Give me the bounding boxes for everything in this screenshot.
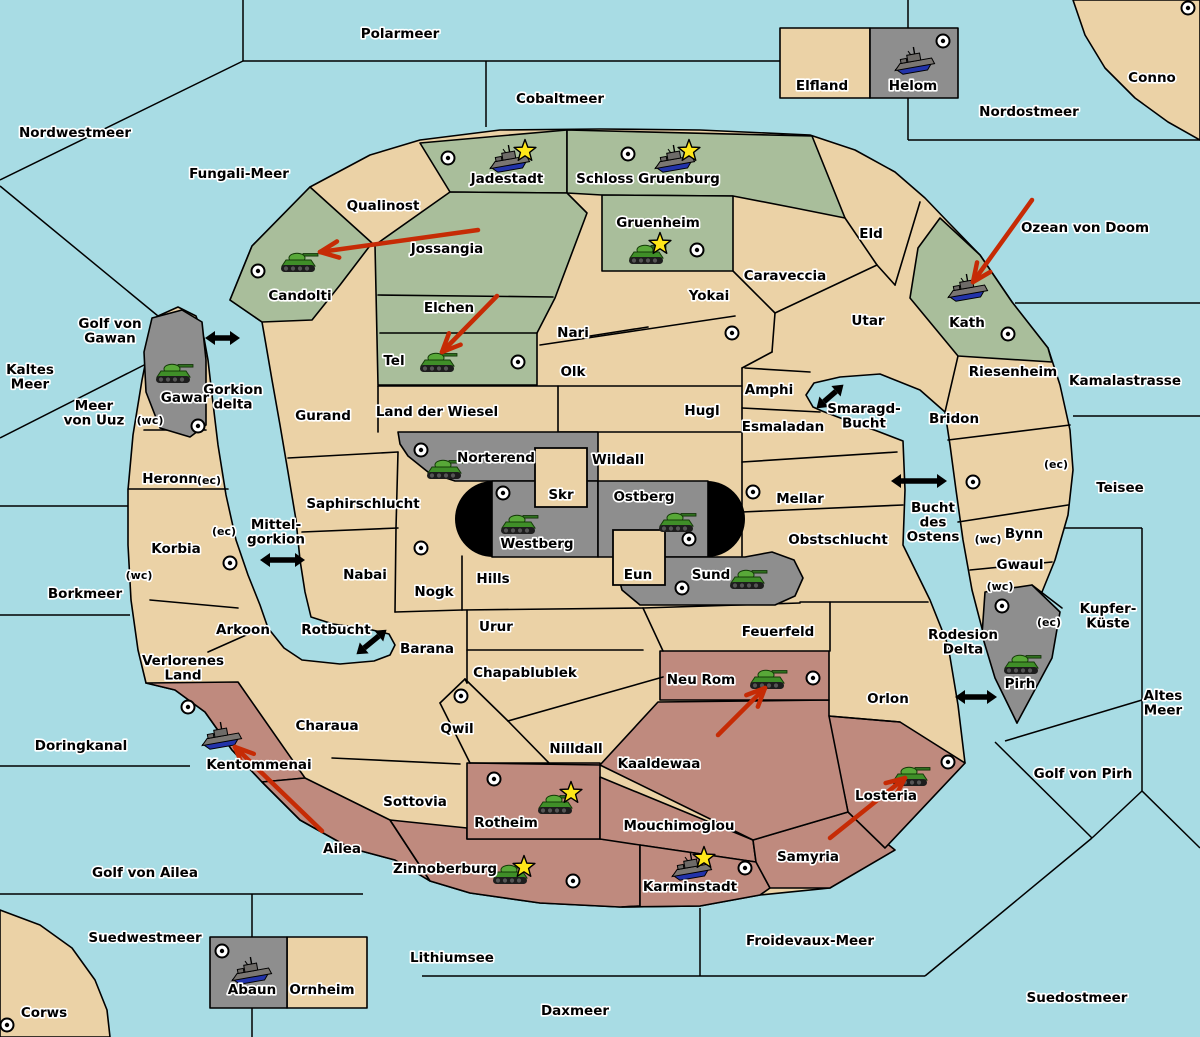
label-olk: Olk (560, 364, 586, 380)
label-nordwestmeer: Nordwestmeer (19, 125, 131, 141)
label-abaun: Abaun (228, 982, 276, 998)
label-jossangia: Jossangia (410, 241, 484, 257)
city-marker-icon (942, 756, 955, 769)
label-mouchimoglou: Mouchimoglou (623, 818, 734, 834)
city-marker-icon (807, 672, 820, 685)
label-nabai: Nabai (343, 567, 387, 583)
label-candolti: Candolti (268, 288, 331, 304)
label-nordostmeer: Nordostmeer (979, 104, 1079, 120)
label-losteria: Losteria (855, 788, 917, 804)
city-marker-icon (415, 542, 428, 555)
city-marker-icon (996, 600, 1009, 613)
label-suedwestmeer: Suedwestmeer (88, 930, 202, 946)
label-karminstadt: Karminstadt (643, 879, 738, 895)
label-elchen: Elchen (424, 300, 474, 316)
label-bridon: Bridon (929, 411, 979, 427)
label-ec: (ec) (1037, 616, 1061, 629)
label-rotbucht: Rotbucht (301, 622, 371, 638)
city-marker-icon (691, 244, 704, 257)
label-esmaladan: Esmaladan (742, 419, 825, 435)
label-heronn: Heronn (142, 471, 198, 487)
city-marker-icon (622, 148, 635, 161)
label-conno: Conno (1128, 70, 1176, 86)
label-ec: (ec) (197, 474, 221, 487)
label-fungali-meer: Fungali-Meer (189, 166, 289, 182)
label-helom: Helom (889, 78, 937, 94)
label-westberg: Westberg (500, 536, 573, 552)
label-kamalastrasse: Kamalastrasse (1069, 373, 1181, 389)
city-marker-icon (739, 862, 752, 875)
label-skr: Skr (548, 487, 574, 503)
label-kentommenai: Kentommenai (206, 757, 311, 773)
label-nogk: Nogk (414, 584, 454, 600)
label-kath: Kath (949, 315, 985, 331)
label-norterend: Norterend (457, 450, 535, 466)
label-gawar: Gawar (161, 390, 210, 406)
label-golf-von-gawan: Golf vonGawan (78, 316, 141, 347)
label-cobaltmeer: Cobaltmeer (516, 91, 604, 107)
city-marker-icon (683, 533, 696, 546)
label-teisee: Teisee (1096, 480, 1144, 496)
label-golf-von-pirh: Golf von Pirh (1034, 766, 1133, 782)
label-golf-von-ailea: Golf von Ailea (92, 865, 198, 881)
label-yokai: Yokai (688, 288, 730, 304)
label-rotheim: Rotheim (474, 815, 538, 831)
label-eun: Eun (624, 567, 652, 583)
label-ailea: Ailea (323, 841, 361, 857)
city-marker-icon (497, 487, 510, 500)
label-kaaldewaa: Kaaldewaa (618, 756, 701, 772)
label-kaltes-meer: KaltesMeer (6, 362, 54, 393)
label-bynn: Bynn (1005, 526, 1043, 542)
label-gruenheim: Gruenheim (616, 215, 700, 231)
label-orlon: Orlon (867, 691, 909, 707)
territory-gruenheim[interactable] (602, 195, 733, 271)
city-marker-icon (1, 1019, 14, 1032)
city-marker-icon (192, 420, 205, 433)
label-tel: Tel (383, 353, 404, 369)
label-nilldall: Nilldall (549, 741, 602, 757)
city-marker-icon (1182, 2, 1195, 15)
label-charaua: Charaua (295, 718, 358, 734)
label-doringkanal: Doringkanal (35, 738, 127, 754)
label-gurand: Gurand (295, 408, 351, 424)
label-barana: Barana (400, 641, 454, 657)
label-wc: (wc) (987, 580, 1014, 593)
city-marker-icon (967, 476, 980, 489)
label-qualinost: Qualinost (347, 198, 420, 214)
label-corws: Corws (21, 1005, 67, 1021)
label-ec: (ec) (1044, 458, 1068, 471)
label-wildall: Wildall (592, 452, 644, 468)
label-riesenheim: Riesenheim (969, 364, 1057, 380)
label-kupfer-küste: Kupfer-Küste (1080, 601, 1137, 632)
label-suedostmeer: Suedostmeer (1027, 990, 1128, 1006)
label-caraveccia: Caraveccia (744, 268, 826, 284)
city-marker-icon (252, 265, 265, 278)
label-mittel-gorkion: Mittel-gorkion (247, 517, 305, 548)
game-map-screenshot: PolarmeerCobaltmeerNordostmeerNordwestme… (0, 0, 1200, 1037)
label-polarmeer: Polarmeer (361, 26, 440, 42)
city-marker-icon (415, 444, 428, 457)
label-sund: Sund (692, 567, 731, 583)
label-elfland: Elfland (796, 78, 848, 94)
label-borkmeer: Borkmeer (48, 586, 123, 602)
city-marker-icon (1002, 328, 1015, 341)
city-marker-icon (224, 557, 237, 570)
label-mellar: Mellar (776, 491, 824, 507)
territory-border-line (395, 528, 396, 612)
city-marker-icon (567, 875, 580, 888)
label-ostberg: Ostberg (613, 489, 674, 505)
label-wc: (wc) (137, 414, 164, 427)
city-marker-icon (455, 690, 468, 703)
city-marker-icon (216, 945, 229, 958)
label-eld: Eld (859, 226, 883, 242)
city-marker-icon (488, 773, 501, 786)
city-marker-icon (937, 35, 950, 48)
label-neu-rom: Neu Rom (667, 672, 736, 688)
label-amphi: Amphi (745, 382, 793, 398)
label-land-der-wiesel: Land der Wiesel (376, 404, 498, 420)
label-chapablublek: Chapablublek (473, 665, 578, 681)
label-daxmeer: Daxmeer (541, 1003, 609, 1019)
label-samyria: Samyria (777, 849, 839, 865)
label-wc: (wc) (975, 533, 1002, 546)
city-marker-icon (747, 486, 760, 499)
label-utar: Utar (851, 313, 885, 329)
city-marker-icon (676, 582, 689, 595)
city-marker-icon (442, 152, 455, 165)
label-altes-meer: AltesMeer (1144, 688, 1183, 719)
label-obstschlucht: Obstschlucht (788, 532, 888, 548)
label-korbia: Korbia (151, 541, 201, 557)
label-zinnoberburg: Zinnoberburg (393, 861, 497, 877)
label-jadestadt: Jadestadt (470, 171, 544, 187)
label-ornheim: Ornheim (289, 982, 354, 998)
city-marker-icon (512, 356, 525, 369)
label-sottovia: Sottovia (383, 794, 447, 810)
label-schloss-gruenburg: Schloss Gruenburg (576, 171, 720, 187)
game-map: PolarmeerCobaltmeerNordostmeerNordwestme… (0, 0, 1200, 1037)
label-hills: Hills (476, 571, 509, 587)
label-froidevaux-meer: Froidevaux-Meer (746, 933, 874, 949)
label-qwil: Qwil (440, 721, 473, 737)
label-nari: Nari (557, 325, 589, 341)
label-gwaul: Gwaul (997, 557, 1044, 573)
label-arkoon: Arkoon (216, 622, 270, 638)
label-ec: (ec) (212, 525, 236, 538)
city-marker-icon (726, 327, 739, 340)
city-marker-icon (182, 701, 195, 714)
label-wc: (wc) (126, 569, 153, 582)
label-feuerfeld: Feuerfeld (742, 624, 815, 640)
label-hugl: Hugl (684, 403, 719, 419)
label-ozean-von-doom: Ozean von Doom (1021, 220, 1149, 236)
label-urur: Urur (479, 619, 513, 635)
label-pirh: Pirh (1005, 676, 1036, 692)
label-lithiumsee: Lithiumsee (410, 950, 494, 966)
label-saphirschlucht: Saphirschlucht (306, 496, 420, 512)
